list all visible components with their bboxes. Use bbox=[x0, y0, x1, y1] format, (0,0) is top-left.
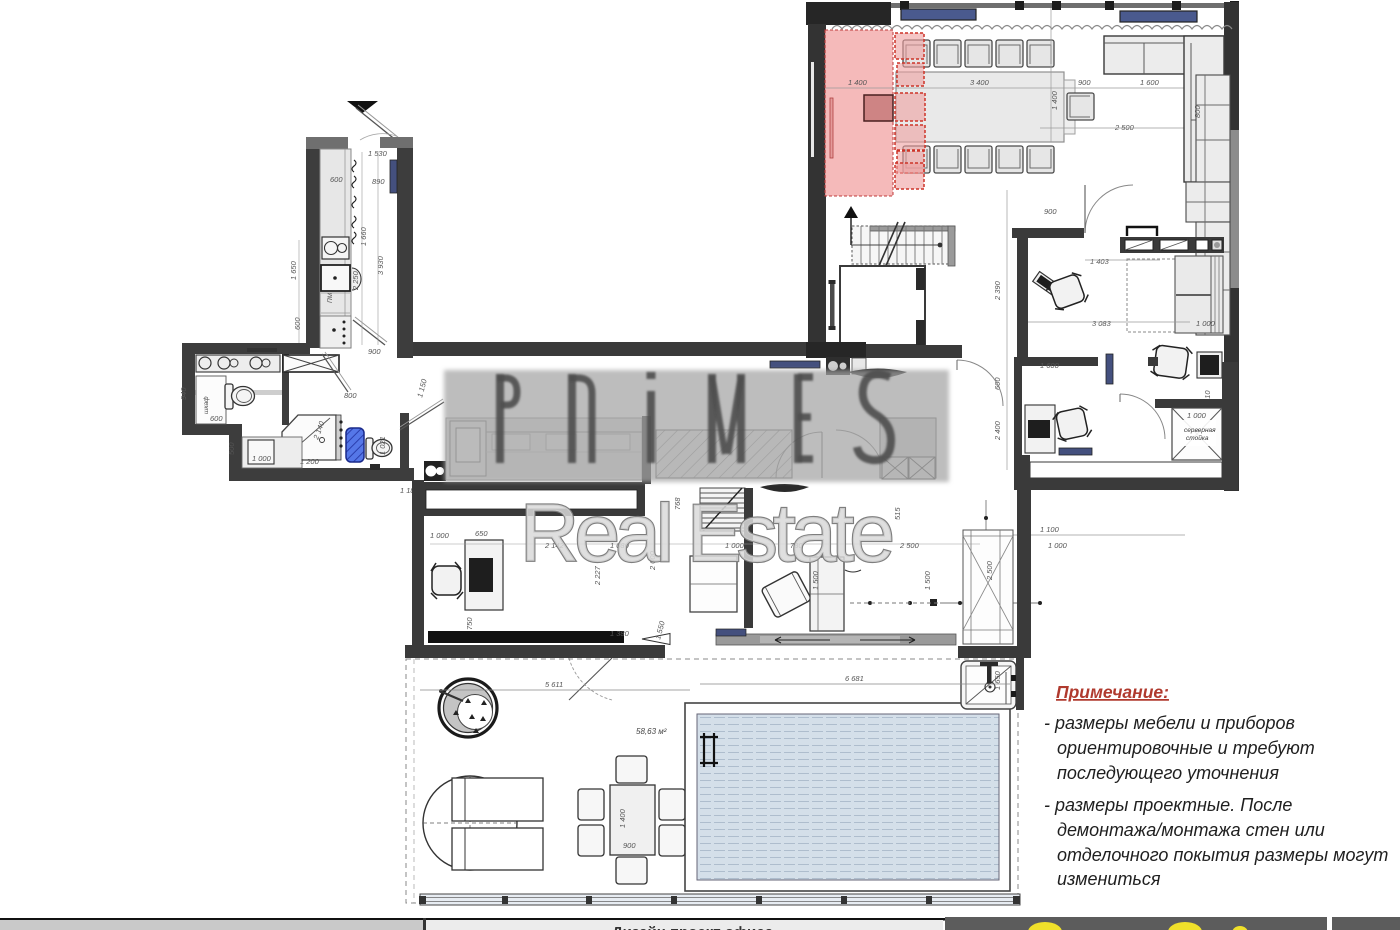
svg-text:1 660: 1 660 bbox=[359, 226, 368, 246]
svg-text:500: 500 bbox=[227, 442, 236, 455]
svg-text:- размеры мебели и приборов: - размеры мебели и приборов bbox=[1044, 713, 1295, 733]
svg-text:1 650: 1 650 bbox=[289, 260, 298, 280]
svg-text:последующего уточнения: последующего уточнения bbox=[1057, 763, 1279, 783]
svg-text:5 611: 5 611 bbox=[545, 680, 563, 689]
svg-text:2 250: 2 250 bbox=[351, 270, 360, 291]
svg-text:940: 940 bbox=[179, 387, 188, 400]
svg-text:1 000: 1 000 bbox=[1048, 541, 1068, 550]
svg-text:1 000: 1 000 bbox=[430, 531, 450, 540]
svg-text:2 390: 2 390 bbox=[993, 280, 1002, 301]
svg-text:ориентировочные и требуют: ориентировочные и требуют bbox=[1057, 738, 1315, 758]
svg-text:1 500: 1 500 bbox=[923, 570, 932, 590]
svg-text:Real Estate: Real Estate bbox=[520, 488, 895, 579]
svg-text:3 400: 3 400 bbox=[970, 78, 990, 87]
svg-text:1 600: 1 600 bbox=[1140, 78, 1160, 87]
svg-text:1 403: 1 403 bbox=[1090, 257, 1110, 266]
svg-text:58,63 м²: 58,63 м² bbox=[636, 727, 667, 736]
svg-text:1 650: 1 650 bbox=[993, 670, 1002, 690]
svg-text:900: 900 bbox=[368, 347, 381, 356]
svg-text:600: 600 bbox=[293, 317, 302, 330]
svg-text:6 681: 6 681 bbox=[845, 674, 864, 683]
svg-text:серверная: серверная bbox=[1184, 427, 1216, 434]
svg-text:1 000: 1 000 bbox=[252, 454, 272, 463]
svg-text:2 500: 2 500 bbox=[1114, 123, 1135, 132]
svg-text:демонтажа/монтажа стен или: демонтажа/монтажа стен или bbox=[1057, 820, 1325, 840]
svg-text:890: 890 bbox=[372, 177, 385, 186]
svg-text:3 083: 3 083 bbox=[1092, 319, 1112, 328]
svg-text:ПМ: ПМ bbox=[327, 292, 334, 303]
svg-text:1 400: 1 400 bbox=[618, 808, 627, 828]
svg-text:750: 750 bbox=[465, 617, 474, 630]
svg-text:900: 900 bbox=[623, 841, 636, 850]
svg-text:1 380: 1 380 bbox=[610, 629, 630, 638]
svg-text:1 000: 1 000 bbox=[1196, 319, 1216, 328]
svg-text:900: 900 bbox=[1078, 78, 1091, 87]
svg-text:2 500: 2 500 bbox=[985, 560, 994, 581]
svg-text:1 200: 1 200 bbox=[300, 457, 320, 466]
svg-text:- размеры проектные. После: - размеры проектные. После bbox=[1044, 795, 1292, 815]
svg-text:отделочного покытия размеры м: отделочного покытия размеры могут bbox=[1057, 845, 1388, 865]
svg-text:стойка: стойка bbox=[1186, 434, 1209, 442]
svg-text:1 100: 1 100 bbox=[1040, 525, 1060, 534]
svg-text:1 400: 1 400 bbox=[848, 78, 868, 87]
svg-text:1 021: 1 021 bbox=[378, 436, 387, 455]
svg-text:1 000: 1 000 bbox=[1187, 411, 1207, 420]
svg-text:1 600: 1 600 bbox=[1040, 361, 1060, 370]
svg-text:2 400: 2 400 bbox=[993, 420, 1002, 441]
svg-text:Примечание:: Примечание: bbox=[1056, 682, 1169, 702]
svg-text:Дизайн проект офиса: Дизайн проект офиса bbox=[612, 924, 774, 930]
svg-text:измениться: измениться bbox=[1057, 869, 1161, 889]
svg-text:600: 600 bbox=[210, 414, 223, 423]
svg-text:шкаф: шкаф bbox=[203, 396, 210, 414]
svg-text:900: 900 bbox=[1044, 207, 1057, 216]
svg-text:3 930: 3 930 bbox=[376, 255, 385, 275]
svg-text:650: 650 bbox=[475, 529, 488, 538]
svg-text:600: 600 bbox=[330, 175, 343, 184]
svg-text:800: 800 bbox=[344, 391, 357, 400]
svg-text:2 500: 2 500 bbox=[899, 541, 920, 550]
svg-text:800: 800 bbox=[1193, 105, 1202, 118]
